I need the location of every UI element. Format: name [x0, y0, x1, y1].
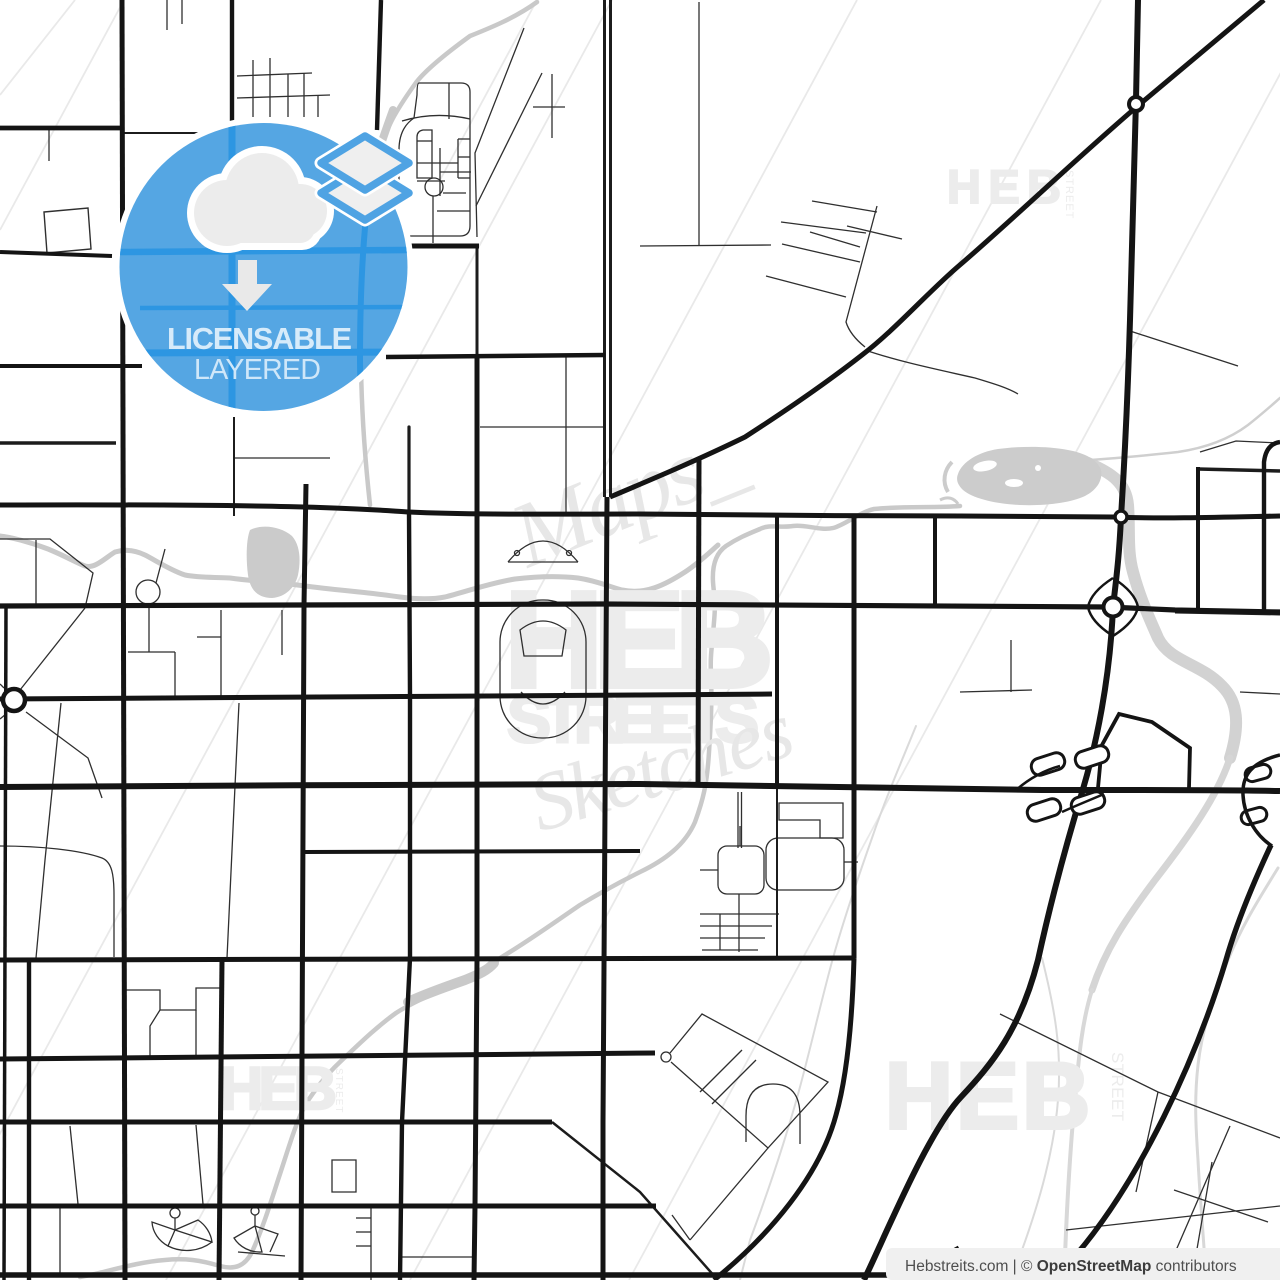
svg-text:LICENSABLE: LICENSABLE — [167, 322, 353, 356]
svg-text:STREET: STREET — [1108, 1052, 1127, 1124]
svg-text:Hebstreits.com | © OpenStreetM: Hebstreits.com | © OpenStreetMap contrib… — [905, 1258, 1237, 1275]
svg-text:HEB: HEB — [885, 1043, 1090, 1148]
svg-text:STREET: STREET — [333, 1068, 344, 1113]
svg-text:STREET: STREET — [1063, 170, 1075, 219]
svg-text:LAYERED: LAYERED — [194, 354, 326, 386]
svg-text:HEB: HEB — [220, 1055, 337, 1122]
